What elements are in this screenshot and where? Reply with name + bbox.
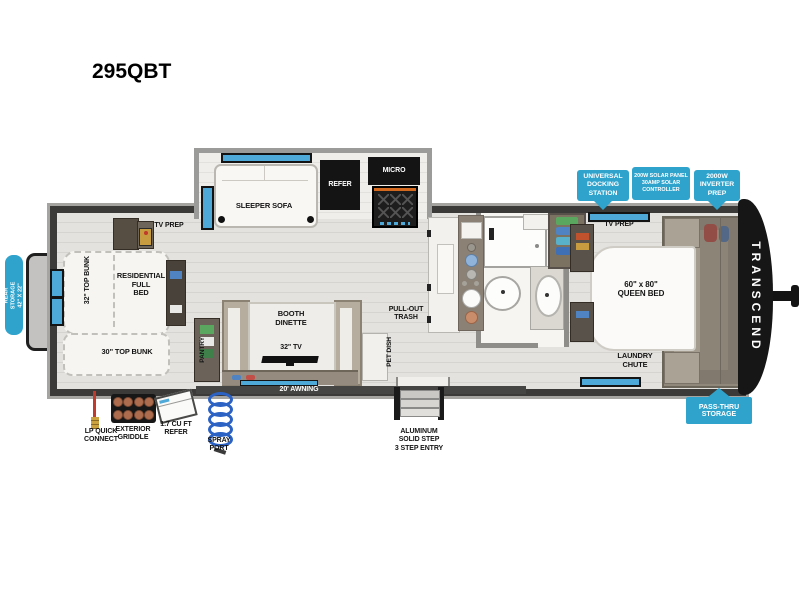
pet-dish-counter bbox=[362, 333, 388, 381]
kitchen-counter bbox=[428, 217, 460, 333]
shower-fixture-icon bbox=[489, 228, 494, 240]
stove-orange-trim bbox=[374, 188, 416, 191]
spray-port-icon bbox=[208, 392, 232, 422]
sleeper-sofa-label: SLEEPER SOFA bbox=[228, 202, 300, 211]
bathroom-vanity bbox=[530, 266, 564, 330]
front-cap: TRANSCEND bbox=[738, 199, 773, 395]
queen-bed-label: 60" x 80" QUEEN BED bbox=[600, 280, 682, 299]
awning-rail bbox=[196, 386, 526, 394]
full-bed-label: RESIDENTIAL FULL BED bbox=[110, 272, 172, 298]
nightstand-bottom bbox=[664, 352, 700, 384]
slideout-window-left bbox=[201, 186, 214, 230]
bunk30-label: 30" TOP BUNK bbox=[92, 348, 162, 357]
sofa-back-cushion-line bbox=[222, 180, 308, 181]
sofa-speaker-right-icon bbox=[307, 216, 314, 223]
pet-dish-label: PET DISH bbox=[386, 331, 394, 373]
pull-out-trash-label: PULL-OUT TRASH bbox=[382, 306, 430, 323]
badge-inverter-prep: 2000W INVERTER PREP bbox=[694, 170, 740, 201]
sofa-speaker-left-icon bbox=[218, 216, 225, 223]
bedroom-cabinet-top bbox=[570, 224, 594, 272]
exterior-griddle-icon bbox=[111, 394, 156, 423]
spray-port-label: SPRAY PORT bbox=[192, 437, 246, 454]
micro-label: MICRO bbox=[383, 167, 406, 175]
rear-hatch-window-top bbox=[50, 269, 64, 298]
microwave: MICRO bbox=[368, 157, 420, 185]
step-entry-label: ALUMINUM SOLID STEP 3 STEP ENTRY bbox=[384, 428, 454, 453]
tv32-label: 32" TV bbox=[272, 344, 310, 352]
refer-label: REFER bbox=[328, 181, 351, 189]
tv-prep-cabinet-left bbox=[113, 218, 139, 250]
entry-steps-icon bbox=[394, 387, 444, 420]
tv-prep-left-label: TV PREP bbox=[150, 222, 188, 230]
pantry-label: PANTRY bbox=[199, 331, 207, 369]
badge-pass-thru-storage: PASS-THRU STORAGE bbox=[686, 397, 752, 424]
stove-controls bbox=[380, 222, 410, 225]
slideout-window-top bbox=[221, 153, 312, 163]
media-device-icon bbox=[139, 228, 152, 246]
floorplan-canvas: 295QBT UNIVERSAL DOCKING STATION 200W SO… bbox=[0, 0, 800, 600]
toilet-icon bbox=[484, 276, 521, 311]
tv-stand-icon bbox=[286, 363, 294, 366]
bathroom-wall-bottom bbox=[476, 343, 538, 348]
tv-icon bbox=[261, 356, 318, 363]
hitch-jack-icon bbox=[791, 285, 799, 307]
badge-solar-panel: 200W SOLAR PANEL 30AMP SOLAR CONTROLLER bbox=[632, 167, 690, 200]
nightstand-top bbox=[664, 218, 700, 248]
stove-burners bbox=[378, 194, 412, 218]
rear-hatch-window-bottom bbox=[50, 297, 64, 326]
badge-rear-storage: REAR STORAGE 42" X 22" bbox=[5, 255, 23, 335]
awning-label: 20' AWNING bbox=[256, 386, 342, 394]
pantry-cabinet bbox=[194, 318, 220, 382]
sleeper-sofa bbox=[214, 164, 318, 228]
sofa-cushion-divider bbox=[264, 166, 265, 180]
brand-label: TRANSCEND bbox=[749, 207, 763, 387]
refrigerator: REFER bbox=[320, 160, 360, 210]
bedroom-window-bottom bbox=[580, 377, 641, 387]
page-title: 295QBT bbox=[92, 60, 171, 84]
badge-universal-docking: UNIVERSAL DOCKING STATION bbox=[577, 170, 629, 201]
bunk32-label: 32" TOP BUNK bbox=[84, 247, 92, 313]
stove-range-icon bbox=[372, 186, 418, 228]
laundry-chute-label: LAUNDRY CHUTE bbox=[608, 352, 662, 369]
bedroom-cabinet-bottom bbox=[570, 302, 594, 342]
mini-refer-label: 1.7 CU FT REFER bbox=[148, 421, 204, 438]
pass-thru-storage-zone bbox=[700, 216, 742, 384]
kitchen-appliance-strip bbox=[458, 215, 484, 331]
booth-dinette-label: BOOTH DINETTE bbox=[262, 310, 320, 328]
badge-rear-storage-label: REAR STORAGE 42" X 22" bbox=[4, 281, 25, 309]
lp-hose-icon bbox=[88, 391, 102, 431]
tv-prep-right-label: TV PREP bbox=[597, 221, 641, 229]
